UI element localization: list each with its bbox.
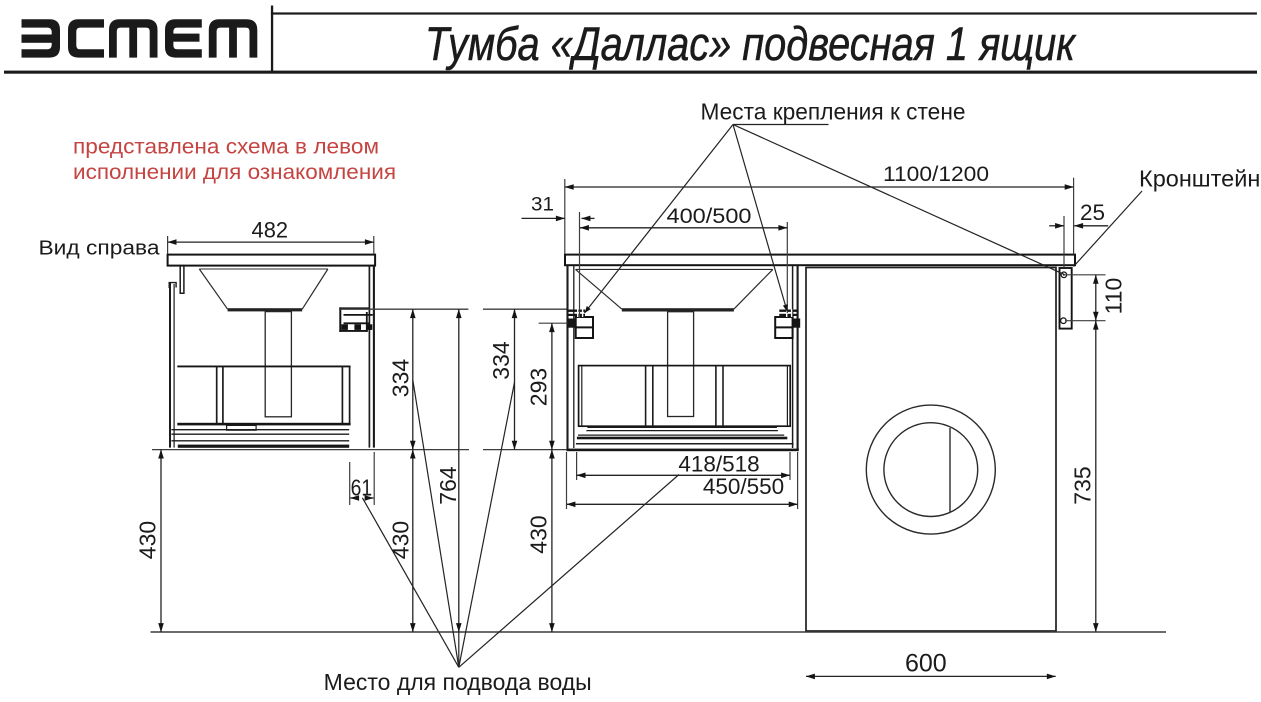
svg-text:764: 764 — [435, 466, 461, 505]
svg-text:430: 430 — [135, 521, 161, 559]
svg-text:334: 334 — [488, 341, 514, 380]
svg-text:Места крепления к стене: Места крепления к стене — [701, 99, 966, 125]
svg-text:293: 293 — [526, 368, 552, 406]
svg-text:Тумба «Даллас» подвесная 1 ящи: Тумба «Даллас» подвесная 1 ящик — [425, 17, 1077, 70]
svg-text:61: 61 — [351, 475, 373, 501]
svg-text:400/500: 400/500 — [667, 204, 752, 228]
svg-text:исполнении для ознакомления: исполнении для ознакомления — [73, 160, 396, 184]
svg-text:430: 430 — [388, 521, 414, 559]
svg-text:418/518: 418/518 — [678, 452, 759, 477]
svg-text:735: 735 — [1070, 466, 1096, 504]
svg-text:Вид справа: Вид справа — [39, 237, 161, 260]
svg-text:Место для подвода воды: Место для подвода воды — [324, 669, 592, 695]
svg-text:1100/1200: 1100/1200 — [883, 162, 989, 186]
svg-text:430: 430 — [526, 515, 552, 553]
svg-text:334: 334 — [388, 359, 414, 398]
svg-text:110: 110 — [1101, 278, 1127, 315]
svg-text:450/550: 450/550 — [703, 474, 784, 499]
svg-text:600: 600 — [905, 650, 947, 678]
svg-text:25: 25 — [1080, 200, 1105, 225]
svg-text:31: 31 — [531, 194, 554, 216]
svg-text:482: 482 — [252, 218, 289, 243]
svg-text:Кронштейн: Кронштейн — [1139, 166, 1260, 192]
svg-text:представлена схема в левом: представлена схема в левом — [73, 135, 379, 159]
